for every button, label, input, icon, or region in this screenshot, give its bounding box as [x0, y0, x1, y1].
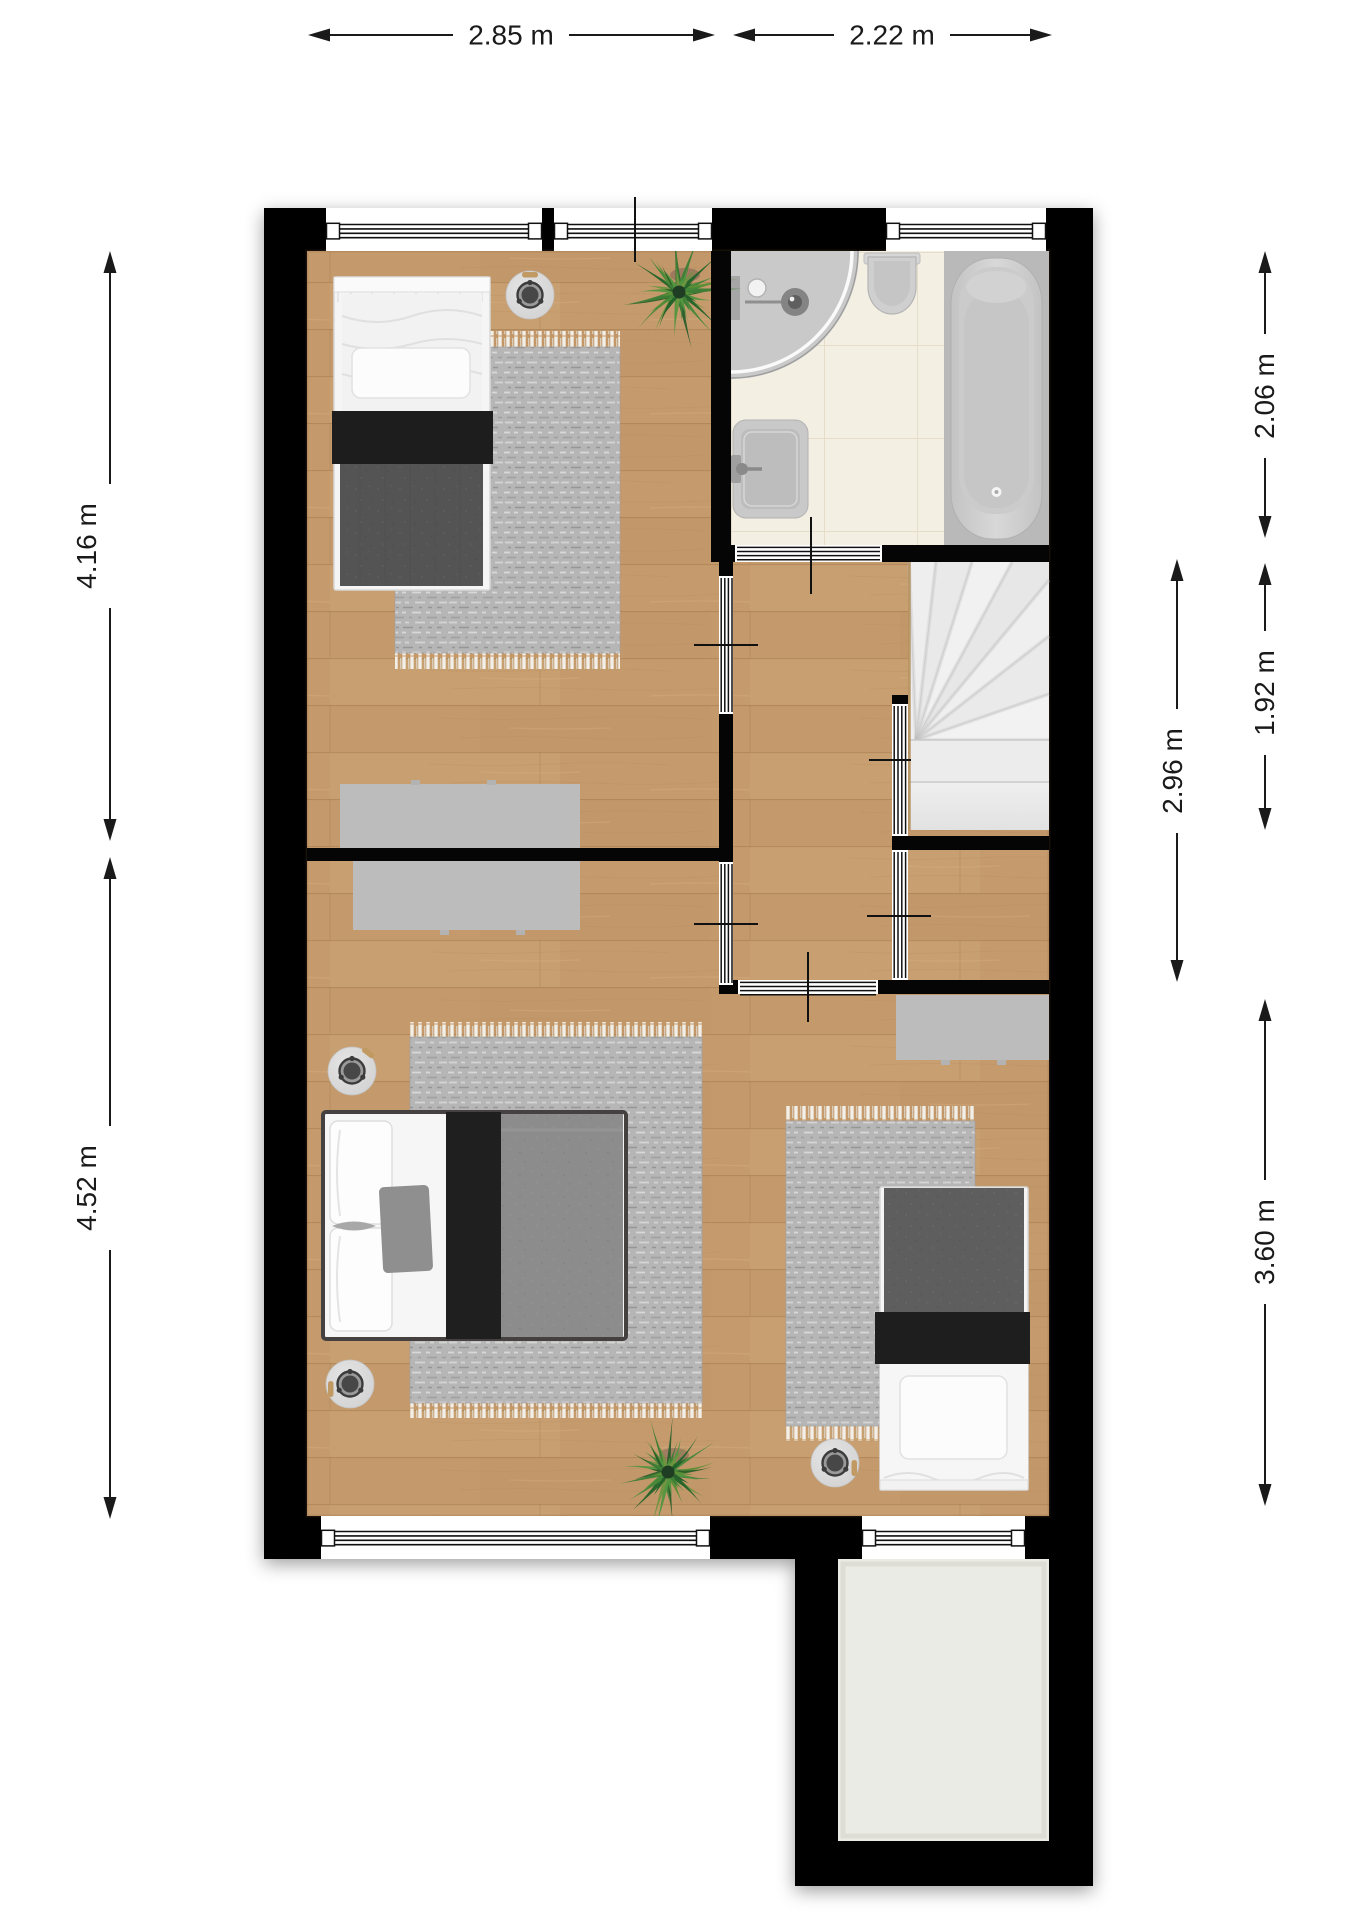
- svg-text:2.96 m: 2.96 m: [1157, 728, 1188, 814]
- svg-text:2.06 m: 2.06 m: [1249, 353, 1280, 439]
- svg-text:2.85 m: 2.85 m: [468, 20, 554, 51]
- svg-text:4.16 m: 4.16 m: [71, 503, 102, 589]
- svg-text:1.92 m: 1.92 m: [1249, 650, 1280, 736]
- svg-text:4.52 m: 4.52 m: [71, 1145, 102, 1231]
- svg-text:3.60 m: 3.60 m: [1249, 1199, 1280, 1285]
- svg-text:2.22 m: 2.22 m: [849, 20, 935, 51]
